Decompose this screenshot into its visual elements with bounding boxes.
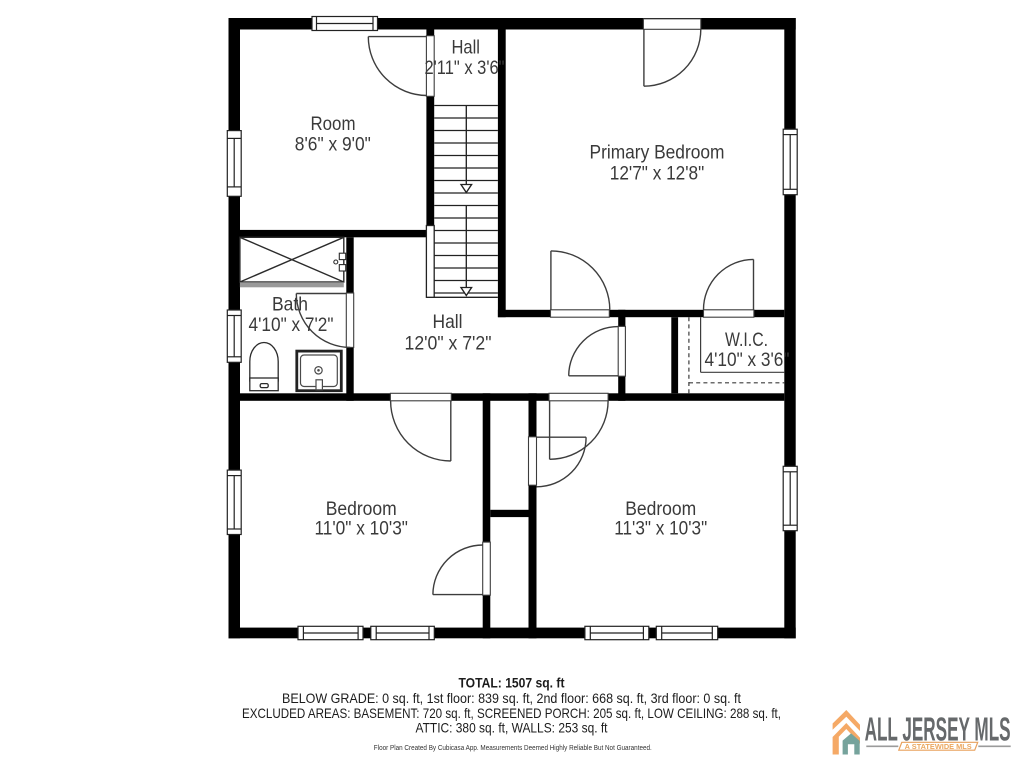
svg-text:2'11" x 3'6": 2'11" x 3'6" [425, 57, 505, 79]
svg-text:Bedroom: Bedroom [326, 498, 397, 520]
svg-text:Bedroom: Bedroom [625, 498, 696, 520]
svg-text:Primary Bedroom: Primary Bedroom [590, 141, 725, 163]
svg-text:W.I.C.: W.I.C. [725, 329, 768, 351]
svg-text:11'0" x 10'3": 11'0" x 10'3" [314, 518, 408, 540]
svg-text:12'0" x 7'2": 12'0" x 7'2" [405, 333, 492, 355]
svg-text:8'6" x 9'0": 8'6" x 9'0" [295, 133, 371, 155]
svg-text:4'10" x 3'6": 4'10" x 3'6" [705, 349, 790, 371]
svg-text:4'10" x 7'2": 4'10" x 7'2" [249, 314, 334, 336]
svg-text:Floor Plan Created By Cubicasa: Floor Plan Created By Cubicasa App. Meas… [374, 743, 652, 752]
svg-text:Bath: Bath [272, 293, 308, 315]
svg-text:12'7" x 12'8": 12'7" x 12'8" [610, 163, 705, 185]
svg-text:TOTAL: 1507 sq. ft: TOTAL: 1507 sq. ft [459, 676, 565, 691]
svg-text:Hall: Hall [433, 311, 463, 333]
svg-text:EXCLUDED AREAS: BASEMENT: 720: EXCLUDED AREAS: BASEMENT: 720 sq. ft, SC… [242, 706, 781, 721]
svg-text:A STATEWIDE MLS: A STATEWIDE MLS [905, 742, 972, 751]
svg-text:11'3" x 10'3": 11'3" x 10'3" [614, 518, 707, 540]
svg-text:BELOW GRADE: 0 sq. ft, 1st flo: BELOW GRADE: 0 sq. ft, 1st floor: 839 sq… [282, 691, 741, 706]
svg-text:ATTIC: 380 sq. ft, WALLS: 253: ATTIC: 380 sq. ft, WALLS: 253 sq. ft [416, 720, 608, 735]
svg-text:Room: Room [311, 113, 356, 135]
svg-text:Hall: Hall [451, 37, 480, 59]
